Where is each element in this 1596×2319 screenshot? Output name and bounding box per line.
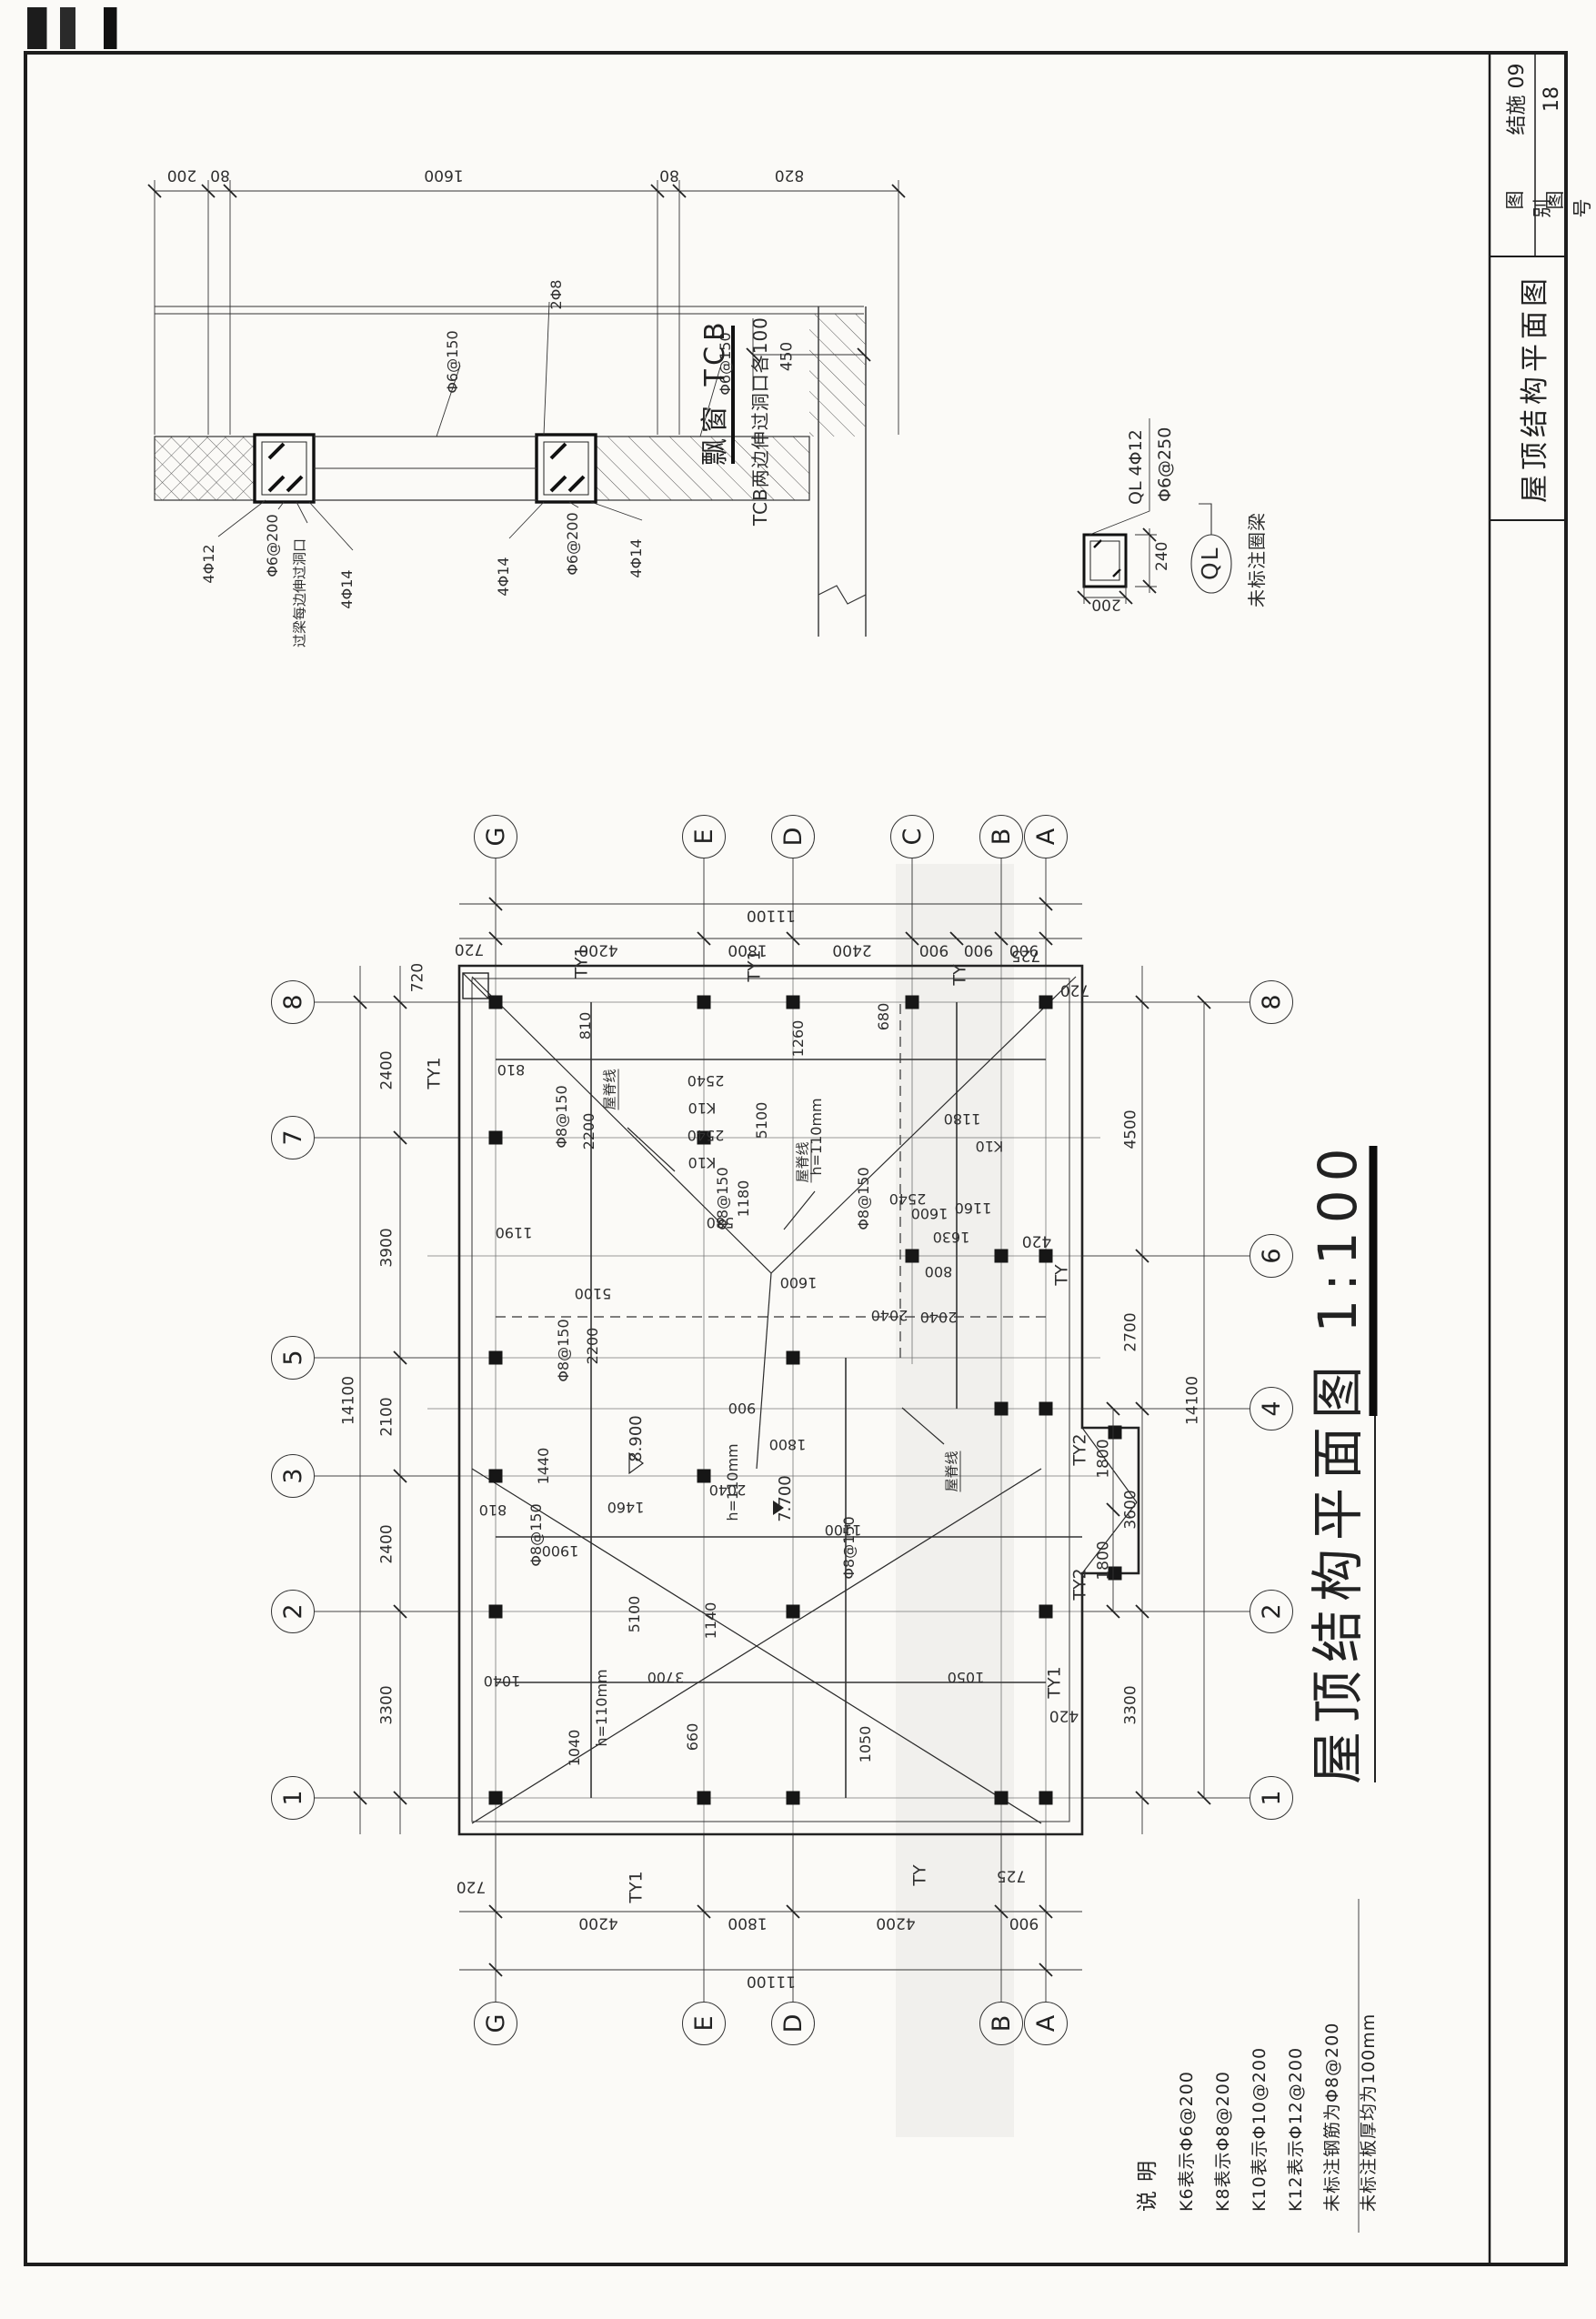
plan-label: TY2	[1072, 1433, 1089, 1465]
plan-label: TY	[952, 964, 969, 985]
tcb-dimension: 820	[775, 167, 804, 183]
axis-bubble-right: G	[474, 815, 517, 858]
plan-label: 1630	[933, 1230, 970, 1244]
plan-dimension: 3300	[380, 1685, 396, 1724]
tcb-caption: 飘窗 TCB	[702, 316, 729, 466]
plan-label: 1460	[607, 1500, 645, 1514]
tcb-label: Φ6@200	[266, 514, 280, 577]
tcb-dimension: 450	[780, 342, 796, 371]
plan-dimension: 1800	[1097, 1439, 1112, 1478]
plan-dimension: 4200	[578, 1915, 617, 1931]
axis-bubble-bottom: 2	[1250, 1590, 1293, 1633]
axis-bubble-top: 3	[271, 1454, 315, 1498]
plan-dimension: 3300	[1124, 1685, 1139, 1724]
axis-bubble-right: C	[890, 815, 934, 858]
plan-label: 1040	[484, 1673, 521, 1688]
plan-label: 8.900	[628, 1415, 645, 1462]
note-line: K6表示Φ6@200	[1173, 1830, 1198, 2212]
plan-label: K10	[688, 1155, 717, 1170]
plan-label: 1440	[537, 1448, 551, 1485]
plan-dimension: 4500	[1124, 1109, 1139, 1149]
axis-bubble-left: A	[1024, 2002, 1068, 2045]
tcb-label: Φ6@150	[446, 330, 460, 393]
plan-dimension: 2400	[380, 1524, 396, 1563]
plan-label: TY	[1054, 1264, 1071, 1285]
plan-label: 2200	[586, 1328, 600, 1365]
plan-label: 800	[925, 1264, 953, 1279]
plan-dimension: 4200	[876, 1915, 915, 1931]
plan-label: 2540	[688, 1128, 725, 1142]
plan-label: h=110mm	[809, 1098, 824, 1175]
plan-dimension: 720	[455, 941, 484, 957]
plan-label: 5100	[575, 1286, 612, 1300]
plan-dimension: 2100	[380, 1397, 396, 1436]
note-line: K8表示Φ8@200	[1210, 1830, 1234, 2212]
ql-caption: 未标注圈梁	[1248, 512, 1266, 607]
plan-label: 3700	[647, 1670, 685, 1684]
plan-label: 1180	[944, 1111, 981, 1126]
plan-label: Φ8@150	[557, 1319, 571, 1381]
plan-label: 2040	[920, 1310, 958, 1324]
plan-dimension: 720	[457, 1879, 486, 1894]
axis-bubble-right: E	[682, 815, 726, 858]
plan-label: 屋脊线	[604, 1069, 619, 1109]
plan-label: 2540	[688, 1073, 725, 1088]
plan-label: 810	[497, 1062, 526, 1077]
plan-label: 1050	[948, 1670, 985, 1684]
plan-label: 2040	[871, 1308, 908, 1322]
axis-bubble-left: G	[474, 2002, 517, 2045]
axis-bubble-top: 2	[271, 1590, 315, 1633]
axis-bubble-right: A	[1024, 815, 1068, 858]
plan-dimension: 900	[964, 942, 993, 958]
plan-label: 2540	[889, 1191, 927, 1206]
plan-label: Φ8@150	[857, 1167, 871, 1230]
plan-label: 1180	[737, 1180, 751, 1218]
tcb-label: 4Φ14	[340, 569, 355, 608]
plan-dimension: 720	[411, 963, 427, 992]
plan-label: TY1	[1047, 1666, 1064, 1698]
plan-label: 680	[877, 1003, 891, 1031]
plan-label: 7.700	[778, 1475, 794, 1522]
plan-dimension: 725	[997, 1868, 1026, 1883]
axis-bubble-bottom: 6	[1250, 1234, 1293, 1278]
titleblock-row2-label: 图 号	[1541, 147, 1595, 253]
plan-dimension: 420	[1022, 1233, 1051, 1249]
plan-label: 580	[707, 1215, 735, 1230]
plan-label: 1800	[769, 1437, 807, 1451]
plan-dimension: 14100	[1186, 1376, 1201, 1425]
plan-dimension: 2700	[1124, 1312, 1139, 1351]
axis-bubble-left: D	[771, 2002, 815, 2045]
tcb-label: 2Φ8	[549, 280, 564, 310]
scan-edge-artifact	[27, 7, 136, 49]
notes-heading: 说明	[1129, 1830, 1160, 2212]
plan-label: 1140	[704, 1602, 718, 1640]
plan-label: TY1	[628, 1871, 646, 1902]
axis-bubble-top: 7	[271, 1116, 315, 1159]
note-line: K10表示Φ10@200	[1246, 1830, 1270, 2212]
plan-label: Φ8@150	[555, 1085, 569, 1148]
plan-dimension: 2400	[832, 942, 871, 958]
ql-dim-height: 200	[1091, 596, 1120, 611]
tcb-dimension: 200	[167, 167, 196, 183]
tcb-dimension: 80	[210, 167, 230, 183]
plan-label: 屋脊线	[946, 1451, 961, 1491]
plan-label: TY1	[427, 1057, 444, 1089]
tcb-label: 4Φ14	[629, 538, 644, 577]
plan-label: 2200	[582, 1113, 597, 1150]
axis-bubble-left: E	[682, 2002, 726, 2045]
plan-label: h=110mm	[595, 1669, 609, 1746]
plan-label: 1040	[567, 1730, 582, 1767]
notes-block: 说明 K6表示Φ6@200K8表示Φ8@200K10表示Φ10@200K12表示…	[1129, 1830, 1391, 2212]
axis-bubble-top: 5	[271, 1336, 315, 1380]
plan-label: 1600	[911, 1206, 949, 1220]
scan-shadow-band	[896, 864, 1014, 2137]
plan-label: 1160	[955, 1200, 992, 1215]
plan-label: 5100	[627, 1596, 642, 1633]
titleblock-drawing-title: 屋顶结构平面图	[1511, 260, 1552, 517]
axis-bubble-bottom: 4	[1250, 1387, 1293, 1431]
plan-dimension: 1800	[728, 1915, 767, 1931]
tcb-label: 4Φ12	[202, 544, 216, 583]
plan-label: 810	[479, 1502, 507, 1517]
axis-bubble-right: B	[979, 815, 1023, 858]
axis-bubble-left: B	[979, 2002, 1023, 2045]
tcb-label: 过梁每边伸过洞口	[294, 538, 307, 648]
axis-bubble-bottom: 8	[1250, 980, 1293, 1024]
note-line: 未标注板厚均为100mm	[1355, 1830, 1380, 2212]
plan-label: 900	[728, 1400, 757, 1415]
plan-dimension: 14100	[342, 1376, 357, 1425]
plan-label: 1190	[496, 1225, 533, 1240]
tcb-dimension: 1600	[424, 167, 463, 183]
plan-label: 2040	[709, 1482, 747, 1497]
tcb-label: 4Φ14	[497, 557, 511, 596]
plan-dimension: 900	[919, 942, 949, 958]
axis-bubble-bottom: 1	[1250, 1776, 1293, 1820]
plan-label: 810	[578, 1012, 593, 1040]
plan-label: 660	[686, 1723, 700, 1752]
plan-dimension: 2400	[380, 1050, 396, 1089]
ql-dim-width: 240	[1155, 542, 1170, 571]
plan-dimension: 3600	[1124, 1490, 1139, 1529]
plan-dimension: 720	[1060, 982, 1089, 998]
plan-label: K10	[976, 1139, 1004, 1153]
plan-label: 1050	[858, 1726, 873, 1763]
plan-label: TY	[912, 1864, 929, 1885]
plan-label: 1260	[791, 1020, 806, 1058]
plan-label: TY1	[747, 949, 764, 981]
scanned-drawing-page: 123578 12468 GEDBA GEDCBA 14100330024002…	[0, 0, 1596, 2319]
plan-label: TY1	[574, 946, 591, 978]
plan-dimension: 11100	[747, 908, 796, 923]
plan-label: K10	[688, 1100, 717, 1115]
tcb-dimension: 80	[659, 167, 679, 183]
plan-label: 1100	[825, 1522, 862, 1537]
axis-bubble-top: 8	[271, 980, 315, 1024]
plan-label: 1600	[780, 1275, 818, 1290]
axis-bubble-top: 1	[271, 1776, 315, 1820]
tcb-note: TCB两边伸过洞口各100	[751, 316, 769, 526]
plan-label: 5100	[755, 1102, 769, 1139]
plan-label: TY2	[1072, 1568, 1089, 1600]
plan-dimension: 725	[1011, 948, 1040, 963]
plan-dimension: 11100	[747, 1973, 796, 1989]
ql-leader-top: QL 4Φ12	[1128, 429, 1145, 505]
plan-dimension: 420	[1049, 1708, 1079, 1723]
main-drawing-title: 屋顶结构平面图 1:100	[1295, 1139, 1371, 1784]
plan-dimension: 1800	[1097, 1541, 1112, 1580]
tcb-label: Φ6@200	[566, 512, 580, 575]
ql-leader-bottom: Φ6@250	[1157, 427, 1174, 502]
axis-bubble-right: D	[771, 815, 815, 858]
notes-lines: K6表示Φ6@200K8表示Φ8@200K10表示Φ10@200K12表示Φ12…	[1173, 1830, 1380, 2212]
plan-dimension: 3900	[380, 1228, 396, 1267]
plan-dimension: 900	[1009, 1915, 1039, 1931]
drawing-sheet: 123578 12468 GEDBA GEDCBA 14100330024002…	[0, 0, 1596, 2319]
note-line: 未标注钢筋为Φ8@200	[1319, 1830, 1343, 2212]
note-line: K12表示Φ12@200	[1282, 1830, 1307, 2212]
titleblock-row1-value: 结施 09	[1501, 53, 1530, 146]
titleblock-row2-value: 18	[1541, 53, 1563, 146]
plan-label: 1900	[542, 1543, 579, 1558]
ql-bubble-label: QL	[1199, 546, 1221, 580]
